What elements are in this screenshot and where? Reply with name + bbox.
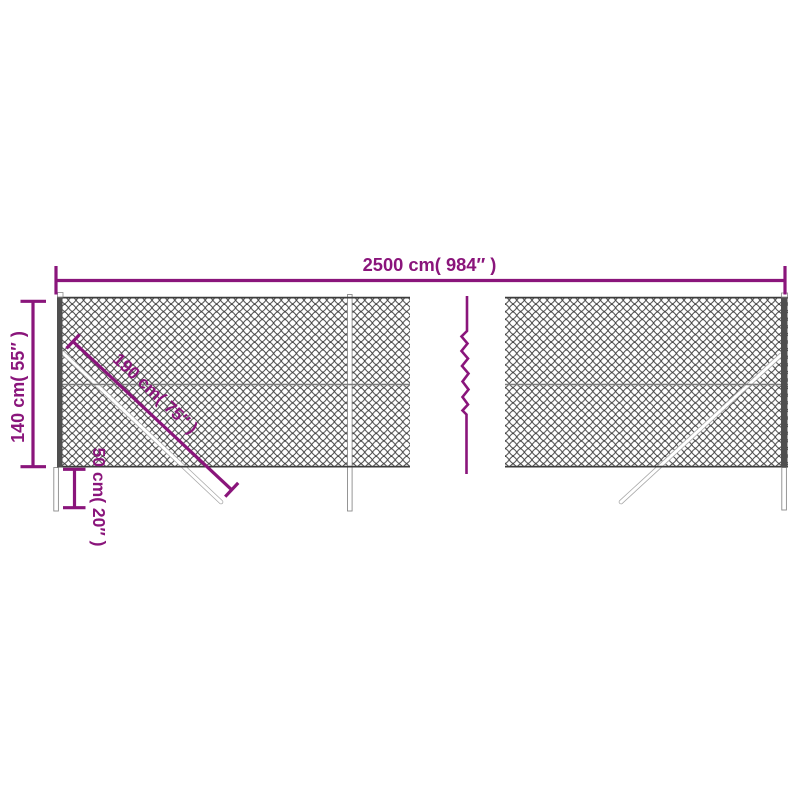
svg-text:140 cm( 55″ ): 140 cm( 55″ ) — [8, 331, 28, 443]
svg-text:50 cm( 20″ ): 50 cm( 20″ ) — [89, 448, 109, 547]
svg-text:2500 cm( 984″ ): 2500 cm( 984″ ) — [363, 254, 497, 275]
